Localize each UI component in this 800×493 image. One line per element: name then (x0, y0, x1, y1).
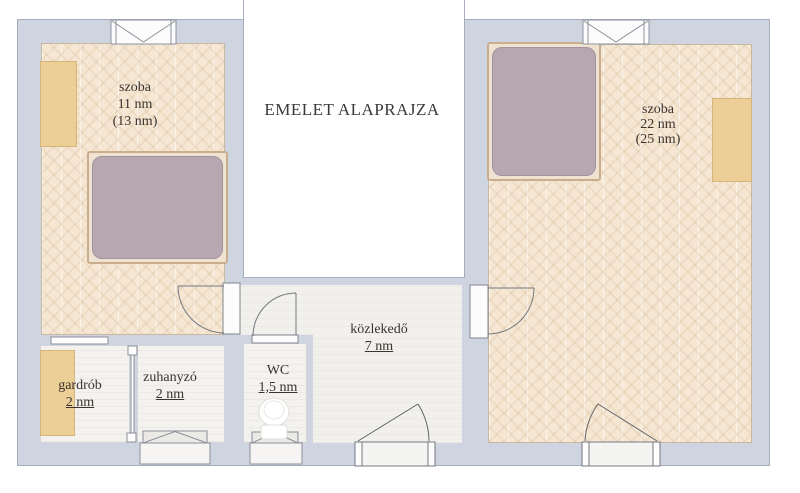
wc-label: WC 1,5 nm (250, 362, 306, 396)
hallway-label: közlekedő 7 nm (329, 321, 429, 355)
hallway-area: 7 nm (329, 338, 429, 355)
door-swing-icon-room1 (178, 283, 240, 334)
window-icon-room2 (583, 20, 649, 44)
room2-label: szoba 22 nm (25 nm) (603, 102, 713, 147)
zuhanyzo-label: zuhanyzó 2 nm (124, 369, 216, 403)
door-swing-icon-room2 (470, 285, 534, 338)
room1-label: szoba 11 nm (13 nm) (80, 79, 190, 130)
room1-name: szoba (80, 79, 190, 96)
gardrob-area: 2 nm (34, 394, 126, 411)
zuhanyzo-area: 2 nm (124, 386, 216, 403)
door-swing-icon-wc (252, 293, 298, 343)
window-icon-room1 (111, 20, 176, 44)
floor-plan: EMELET ALAPRAJZA szoba 11 nm (13 nm) szo… (0, 0, 800, 493)
zuhanyzo-name: zuhanyzó (124, 369, 216, 386)
room2-area-alt: (25 nm) (603, 132, 713, 147)
door-swing-icon-hallway-entry (355, 404, 435, 466)
gardrob-label: gardrób 2 nm (34, 377, 126, 411)
gardrob-name: gardrób (34, 377, 126, 394)
plan-symbols-layer (0, 0, 800, 493)
door-swing-icon-room2-entry (582, 404, 660, 466)
hallway-name: közlekedő (329, 321, 429, 338)
toilet-icon (259, 398, 289, 439)
wc-name: WC (250, 362, 306, 379)
room1-area-alt: (13 nm) (80, 113, 190, 130)
window-icon-zuhanyzo (140, 431, 210, 464)
plan-title: EMELET ALAPRAJZA (240, 100, 464, 120)
room2-area: 22 nm (603, 117, 713, 132)
wc-area: 1,5 nm (250, 379, 306, 396)
room2-name: szoba (603, 102, 713, 117)
room1-area: 11 nm (80, 96, 190, 113)
wall-opening-icon (51, 337, 108, 344)
